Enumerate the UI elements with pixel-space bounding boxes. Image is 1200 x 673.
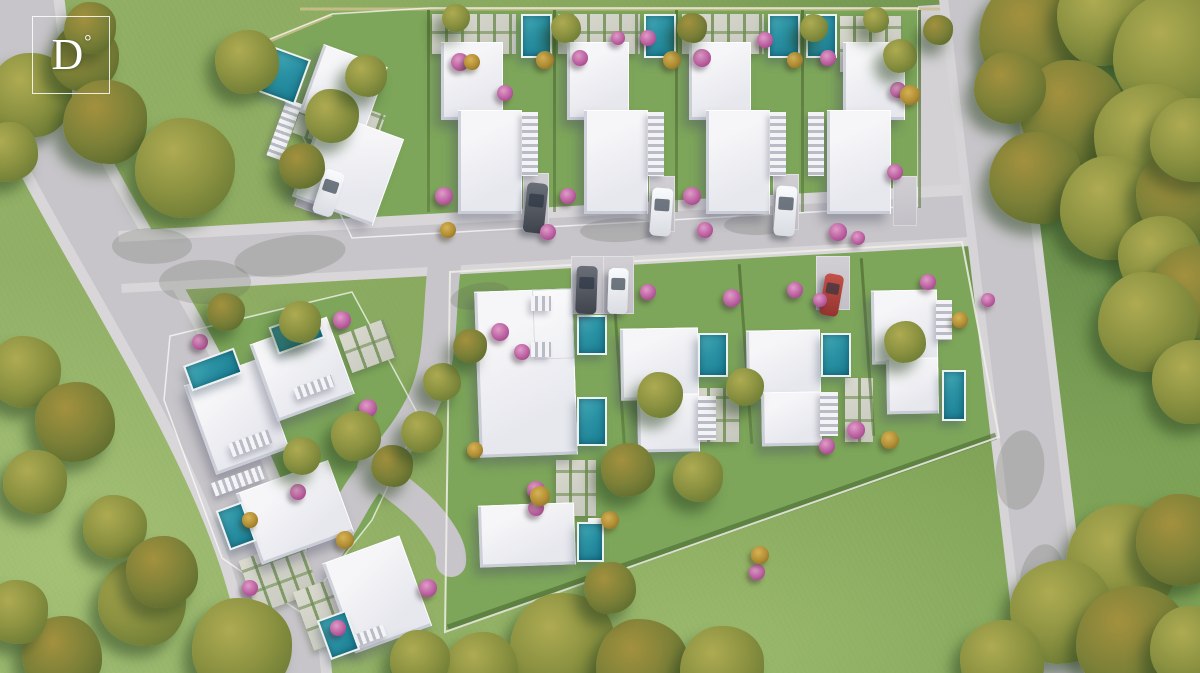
tree: [446, 632, 518, 673]
flower-bush: [540, 224, 556, 240]
car-windshield: [778, 197, 794, 211]
flower-bush: [514, 344, 530, 360]
shrub: [536, 51, 554, 69]
tree: [584, 562, 636, 614]
flower-bush: [640, 30, 656, 46]
flower-bush: [330, 620, 346, 636]
building-roof: [458, 110, 522, 214]
tree: [192, 598, 292, 673]
tree: [677, 13, 707, 43]
building-stairs: [648, 112, 664, 176]
tree: [331, 411, 381, 461]
flower-bush: [192, 334, 208, 350]
swimming-pool: [577, 522, 604, 562]
tree: [680, 626, 764, 673]
flower-bush: [920, 274, 936, 290]
tree: [863, 7, 889, 33]
tree: [923, 15, 953, 45]
car: [773, 185, 797, 236]
tree: [279, 143, 325, 189]
shrub: [467, 442, 483, 458]
stairs: [531, 342, 551, 357]
logo-letter: D: [52, 33, 84, 77]
swimming-pool: [821, 333, 851, 377]
stairs: [820, 392, 838, 436]
site-objects-layer: [0, 0, 1200, 673]
tree: [453, 329, 487, 363]
car-windshield: [825, 282, 840, 295]
flower-bush: [435, 187, 453, 205]
building-roof: [706, 110, 770, 214]
site-plan-render: D°: [0, 0, 1200, 673]
tree: [279, 301, 321, 343]
shrub: [464, 54, 480, 70]
flower-bush: [572, 50, 588, 66]
flower-bush: [683, 187, 701, 205]
tree: [974, 52, 1046, 124]
car-windshield: [654, 198, 670, 211]
flower-bush: [887, 164, 903, 180]
tree: [442, 4, 470, 32]
flower-bush: [419, 579, 437, 597]
flower-bush: [787, 282, 803, 298]
tree: [135, 118, 235, 218]
stairs: [698, 396, 716, 440]
flower-bush: [749, 564, 765, 580]
swimming-pool: [698, 333, 728, 377]
flower-bush: [829, 223, 847, 241]
tree: [726, 368, 764, 406]
tree: [800, 14, 828, 42]
tree: [601, 443, 655, 497]
car-windshield: [579, 276, 594, 289]
building-stairs: [522, 112, 538, 176]
shrub: [663, 51, 681, 69]
flower-bush: [491, 323, 509, 341]
brand-logo: D°: [32, 16, 110, 94]
car: [607, 268, 629, 315]
swimming-pool: [942, 370, 966, 421]
flower-bush: [242, 580, 258, 596]
stairs: [531, 296, 551, 311]
flower-bush: [290, 484, 306, 500]
car: [649, 187, 673, 236]
tree: [126, 536, 198, 608]
tree: [345, 55, 387, 97]
tree: [35, 382, 115, 462]
car: [575, 266, 598, 315]
flower-bush: [560, 188, 576, 204]
flower-bush: [723, 289, 741, 307]
tree: [551, 13, 581, 43]
building-stairs: [770, 112, 786, 176]
flower-bush: [757, 32, 773, 48]
tree: [215, 30, 279, 94]
car-windshield: [528, 193, 544, 207]
tree: [305, 89, 359, 143]
building-stairs: [808, 112, 824, 176]
tree: [3, 450, 67, 514]
building-roof: [827, 110, 891, 214]
building-roof: [761, 391, 822, 446]
flower-bush: [333, 311, 351, 329]
flower-bush: [611, 31, 625, 45]
tree: [637, 372, 683, 418]
flower-bush: [497, 85, 513, 101]
flower-bush: [697, 222, 713, 238]
flower-bush: [820, 50, 836, 66]
shrub: [530, 486, 550, 506]
flower-bush: [847, 421, 865, 439]
building-roof: [886, 357, 939, 414]
tree: [207, 293, 245, 331]
tree: [673, 452, 723, 502]
flower-bush: [851, 231, 865, 245]
villa-building: [474, 286, 580, 459]
tree: [390, 630, 450, 673]
flower-bush: [819, 438, 835, 454]
shrub: [440, 222, 456, 238]
flower-bush: [981, 293, 995, 307]
flower-bush: [693, 49, 711, 67]
shrub: [900, 85, 920, 105]
car-windshield: [611, 278, 625, 290]
shrub: [952, 312, 968, 328]
shrub: [787, 52, 803, 68]
shrub: [751, 546, 769, 564]
flower-bush: [813, 293, 827, 307]
stairs: [936, 300, 952, 340]
swimming-pool: [577, 315, 607, 355]
shrub: [336, 531, 354, 549]
flower-bush: [640, 284, 656, 300]
tree: [283, 437, 321, 475]
tree: [401, 411, 443, 453]
building-roof: [584, 110, 648, 214]
swimming-pool: [577, 397, 607, 446]
shrub: [242, 512, 258, 528]
tree: [884, 321, 926, 363]
shrub: [601, 511, 619, 529]
logo-degree-mark: °: [84, 31, 91, 52]
tree: [371, 445, 413, 487]
tree: [883, 39, 917, 73]
tree: [423, 363, 461, 401]
car-windshield: [322, 178, 340, 194]
shrub: [881, 431, 899, 449]
villa-building: [478, 502, 576, 569]
building-roof: [478, 502, 576, 567]
